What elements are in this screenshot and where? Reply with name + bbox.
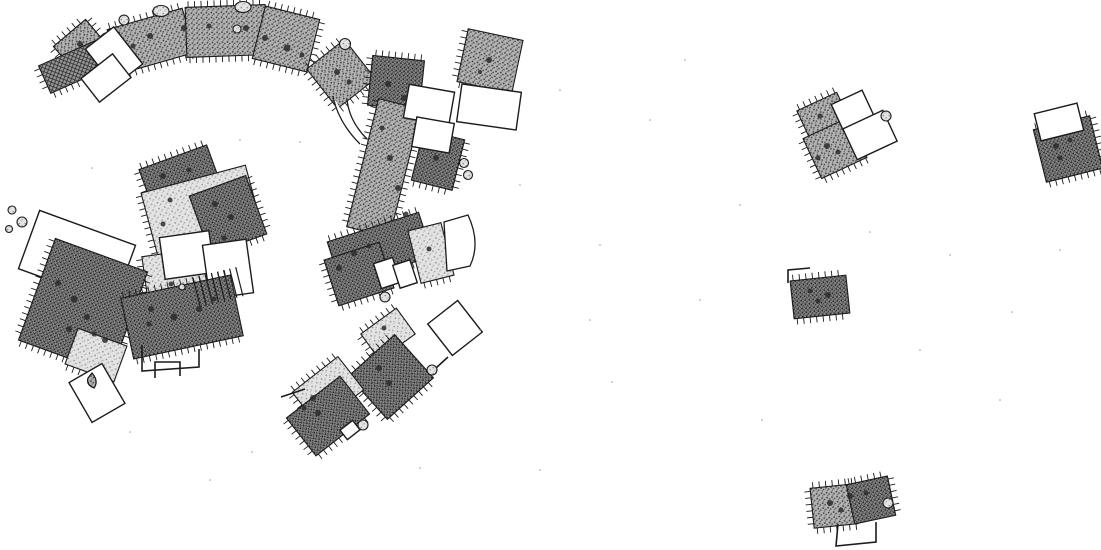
feature-marker — [235, 2, 251, 13]
speck — [559, 89, 561, 91]
hearth-spot — [385, 81, 391, 87]
hearth-spot — [212, 201, 218, 207]
speck — [684, 59, 686, 61]
hearth-spot — [169, 282, 174, 287]
hearth-spot — [433, 155, 439, 161]
room-fan-arc-outline — [444, 215, 475, 271]
feature-dot — [460, 159, 469, 168]
speck — [739, 204, 741, 206]
hearth-spot — [1058, 156, 1063, 161]
hearth-spot — [827, 500, 833, 506]
hearth-spot — [310, 395, 316, 401]
speck — [91, 167, 93, 169]
hearth-spot — [816, 299, 821, 304]
hearth-spot — [836, 150, 841, 155]
layer-buildings — [11, 0, 1101, 535]
speck — [949, 254, 951, 256]
hearth-spot — [243, 25, 249, 31]
hearth-spot — [187, 168, 192, 173]
room-sse-outline-diamond — [428, 301, 483, 356]
hearth-spot — [222, 236, 227, 241]
hearth-spot — [486, 57, 492, 63]
feature-marker — [358, 420, 368, 430]
feature-dot — [6, 226, 13, 233]
hearth-spot — [168, 198, 173, 203]
hearth-spot — [347, 80, 352, 85]
hearth-spot — [160, 173, 166, 179]
feature-dot — [17, 217, 27, 227]
feature-marker — [119, 15, 129, 25]
hearth-spot — [387, 155, 393, 161]
hearth-spot — [102, 337, 108, 343]
speck — [209, 479, 211, 481]
feature-marker — [233, 25, 241, 33]
hearth-spot — [300, 53, 305, 58]
speck — [869, 231, 871, 233]
hearth-spot — [351, 250, 357, 256]
hearth-spot — [404, 212, 409, 217]
speck — [539, 469, 541, 471]
hearth-spot — [302, 406, 307, 411]
hearth-spot — [386, 380, 392, 386]
speck — [299, 141, 301, 143]
hearth-spot — [66, 326, 72, 332]
layer-walls — [142, 268, 876, 546]
feature-marker — [881, 111, 891, 121]
house-r3 — [790, 269, 851, 325]
hearth-spot — [478, 70, 482, 74]
hearth-spot — [148, 306, 154, 312]
hearth-spot — [825, 292, 831, 298]
hearth-spot — [864, 491, 869, 496]
speck — [761, 419, 763, 421]
hearth-spot — [262, 35, 268, 41]
speck — [1011, 311, 1013, 313]
hearth-spot — [401, 95, 407, 101]
hearth-spot — [228, 214, 234, 220]
hearth-spot — [824, 143, 830, 149]
hearth-spot — [196, 306, 202, 312]
hearth-spot — [161, 222, 166, 227]
hearth-spot — [131, 44, 136, 49]
speck — [999, 399, 1001, 401]
speck — [699, 299, 701, 301]
speck — [589, 319, 591, 321]
hearth-spot — [367, 244, 372, 249]
hearth-spot — [336, 265, 342, 271]
hearth-spot — [808, 289, 813, 294]
feature-dot — [464, 171, 473, 180]
speck — [251, 451, 253, 453]
hearth-spot — [212, 297, 217, 302]
hearth-spot — [92, 332, 97, 337]
house-r4-east — [845, 469, 902, 524]
hearth-spot — [847, 493, 853, 499]
hearth-spot — [380, 126, 385, 131]
hearth-spot — [84, 314, 90, 320]
speck — [479, 329, 481, 331]
speck — [919, 349, 921, 351]
speck — [649, 119, 651, 121]
feature-marker — [883, 498, 893, 508]
site-plan — [0, 0, 1101, 550]
hearth-spot — [334, 69, 340, 75]
room-ne-outline-b — [412, 117, 455, 153]
speck — [611, 381, 613, 383]
hearth-spot — [1053, 143, 1059, 149]
hearth-spot — [181, 25, 187, 31]
hearth-spot — [207, 24, 212, 29]
speck — [239, 139, 241, 141]
hearth-spot — [376, 365, 382, 371]
speck — [519, 184, 521, 186]
hearth-spot — [147, 322, 152, 327]
feature-marker — [153, 6, 169, 17]
hearth-spot — [395, 185, 401, 191]
room-ne-detached-outline — [457, 84, 522, 130]
feature-marker — [380, 292, 390, 302]
speck — [599, 244, 601, 246]
hearth-spot — [55, 280, 61, 286]
hearth-spot — [147, 33, 153, 39]
feature-dot — [8, 206, 16, 214]
hearth-spot — [284, 45, 291, 52]
hearth-spot — [382, 326, 387, 331]
hearth-spot — [71, 296, 78, 303]
hearth-spot — [77, 41, 83, 47]
hearth-spot — [816, 156, 821, 161]
speck — [419, 467, 421, 469]
feature-marker — [340, 39, 351, 50]
hearth-spot — [839, 508, 844, 513]
speck — [1059, 249, 1061, 251]
hearth-spot — [315, 410, 321, 416]
hearth-spot — [818, 114, 823, 119]
hearth-spot — [427, 247, 432, 252]
feature-marker — [427, 365, 437, 375]
wall-s-tick — [436, 357, 448, 368]
hearth-spot — [171, 314, 178, 321]
speck — [129, 431, 131, 433]
site-plan-svg — [0, 0, 1101, 550]
hearth-spot — [1068, 138, 1073, 143]
feature-dot — [179, 284, 185, 290]
